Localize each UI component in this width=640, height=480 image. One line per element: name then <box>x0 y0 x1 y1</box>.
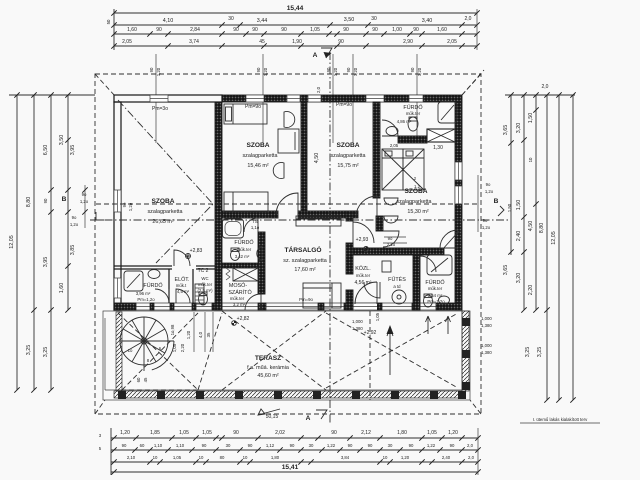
svg-text:90: 90 <box>252 27 258 33</box>
svg-text:90: 90 <box>343 27 349 33</box>
svg-text:2,05: 2,05 <box>122 39 132 45</box>
svg-text:Pm=3o: Pm=3o <box>152 106 168 112</box>
svg-text:45: 45 <box>143 377 148 382</box>
svg-text:3: 3 <box>99 433 102 438</box>
svg-text:15,46 m²: 15,46 m² <box>247 163 268 169</box>
svg-text:SZOBA: SZOBA <box>246 142 269 149</box>
svg-text:1,20: 1,20 <box>333 67 338 76</box>
svg-text:12,05: 12,05 <box>9 235 15 249</box>
svg-text:3,50: 3,50 <box>344 17 355 23</box>
svg-text:9o: 9o <box>483 218 488 223</box>
svg-text:1,50: 1,50 <box>528 113 534 124</box>
svg-text:3,25: 3,25 <box>43 347 49 358</box>
svg-text:FÜRDŐ: FÜRDŐ <box>234 239 253 246</box>
svg-text:90: 90 <box>368 443 373 448</box>
svg-text:+2,83: +2,83 <box>190 248 203 254</box>
svg-text:80: 80 <box>220 455 225 460</box>
svg-text:TERASZ: TERASZ <box>255 355 281 362</box>
svg-text:3,25: 3,25 <box>26 345 32 356</box>
svg-text:1,60: 1,60 <box>437 27 447 33</box>
svg-text:2,02: 2,02 <box>275 430 285 436</box>
svg-text:90: 90 <box>149 67 154 72</box>
svg-text:+2,93: +2,93 <box>356 237 369 243</box>
svg-text:1,50: 1,50 <box>507 203 512 212</box>
svg-text:3,42 m²: 3,42 m² <box>235 254 250 259</box>
svg-text:2,40: 2,40 <box>516 231 522 242</box>
svg-text:35: 35 <box>206 332 211 337</box>
svg-text:1,00: 1,00 <box>392 27 402 33</box>
svg-text:1,20: 1,20 <box>120 430 130 436</box>
svg-text:A: A <box>306 415 311 422</box>
svg-text:90: 90 <box>233 27 239 33</box>
svg-text:10: 10 <box>199 455 204 460</box>
svg-text:4,10: 4,10 <box>163 18 174 24</box>
svg-text:f.a. műá. kerámia: f.a. műá. kerámia <box>247 365 289 371</box>
svg-text:ELŐT.: ELŐT. <box>175 276 190 283</box>
svg-text:3,50: 3,50 <box>59 135 65 146</box>
svg-text:1,90: 1,90 <box>292 39 302 45</box>
svg-text:3,74: 3,74 <box>189 39 199 45</box>
svg-text:90: 90 <box>290 443 295 448</box>
svg-text:90: 90 <box>413 27 419 33</box>
svg-text:1,85: 1,85 <box>150 430 160 436</box>
svg-text:3,95: 3,95 <box>70 145 76 156</box>
svg-text:szalagparketta: szalagparketta <box>242 153 277 159</box>
svg-text:90: 90 <box>233 430 239 436</box>
svg-text:1,000: 1,000 <box>481 316 492 321</box>
svg-text:9o: 9o <box>72 215 77 220</box>
svg-text:30: 30 <box>371 16 377 22</box>
svg-text:50,15: 50,15 <box>266 414 279 420</box>
svg-text:Pm=9o: Pm=9o <box>299 297 313 302</box>
svg-text:KÖZL.: KÖZL. <box>355 265 371 272</box>
svg-text:FÜRDŐ: FÜRDŐ <box>425 279 444 286</box>
svg-text:2,12: 2,12 <box>361 430 371 436</box>
svg-text:90: 90 <box>372 27 378 33</box>
svg-text:1,05: 1,05 <box>179 430 189 436</box>
svg-text:1,05: 1,05 <box>202 430 212 436</box>
svg-text:2,0: 2,0 <box>542 84 549 90</box>
svg-text:2,0: 2,0 <box>316 86 321 93</box>
svg-text:2,0: 2,0 <box>468 455 475 460</box>
svg-text:2,84: 2,84 <box>190 27 200 33</box>
svg-text:1,2o: 1,2o <box>80 199 89 204</box>
svg-text:1,20: 1,20 <box>186 330 191 339</box>
svg-text:17,60 m²: 17,60 m² <box>294 267 315 273</box>
svg-text:4,50: 4,50 <box>528 221 534 232</box>
svg-text:1,80: 1,80 <box>271 455 280 460</box>
svg-text:Pm=1,2o: Pm=1,2o <box>137 297 155 302</box>
svg-text:4,50: 4,50 <box>314 153 320 164</box>
svg-text:1,50: 1,50 <box>516 200 522 211</box>
svg-text:12,05: 12,05 <box>551 231 557 245</box>
svg-text:műk.ter: műk.ter <box>356 273 371 278</box>
svg-text:3,96 m²: 3,96 m² <box>136 291 151 296</box>
svg-text:15,30 m²: 15,30 m² <box>407 209 428 215</box>
svg-text:2,0: 2,0 <box>465 16 472 22</box>
svg-text:1,05: 1,05 <box>172 343 177 352</box>
svg-text:2,20: 2,20 <box>180 343 185 352</box>
svg-text:1,20: 1,20 <box>263 67 268 76</box>
svg-text:90: 90 <box>122 443 127 448</box>
svg-text:30: 30 <box>309 443 314 448</box>
svg-text:1,22: 1,22 <box>427 443 436 448</box>
svg-text:sz. szalagparketta: sz. szalagparketta <box>283 258 326 264</box>
svg-text:3,84: 3,84 <box>341 455 350 460</box>
svg-text:50: 50 <box>106 19 111 24</box>
svg-text:TÁRSALGÓ: TÁRSALGÓ <box>285 245 322 254</box>
svg-text:1,20: 1,20 <box>353 67 358 76</box>
svg-text:15,75 m²: 15,75 m² <box>337 163 358 169</box>
svg-text:1,20: 1,20 <box>417 67 422 76</box>
svg-text:90: 90 <box>348 443 353 448</box>
svg-text:I. ütemű lakás kialakított ter: I. ütemű lakás kialakított terv <box>533 417 588 422</box>
svg-text:3,44: 3,44 <box>257 18 268 24</box>
svg-text:15,41: 15,41 <box>282 464 299 471</box>
svg-text:MOSÓ-: MOSÓ- <box>229 282 247 289</box>
svg-text:FÜRDŐ: FÜRDŐ <box>143 282 162 289</box>
svg-text:1,380: 1,380 <box>481 350 492 355</box>
svg-text:szalagparketta: szalagparketta <box>147 209 182 215</box>
svg-text:SZOBA: SZOBA <box>336 142 359 149</box>
svg-text:1,10: 1,10 <box>176 443 185 448</box>
svg-text:1,10: 1,10 <box>154 443 163 448</box>
svg-text:2,05: 2,05 <box>390 143 399 148</box>
svg-text:1,05: 1,05 <box>173 455 182 460</box>
svg-text:60: 60 <box>136 377 141 382</box>
svg-text:2,90: 2,90 <box>403 39 413 45</box>
svg-text:Pm=9o: Pm=9o <box>336 102 352 108</box>
svg-text:1,20: 1,20 <box>448 430 458 436</box>
svg-text:1,380: 1,380 <box>352 326 363 331</box>
svg-text:A: A <box>313 52 318 59</box>
svg-text:FŰTÉS: FŰTÉS <box>388 276 406 283</box>
svg-text:9o: 9o <box>82 192 87 197</box>
svg-text:1,1o: 1,1o <box>251 225 260 230</box>
svg-text:műk.ter: műk.ter <box>428 286 443 291</box>
svg-text:4,56 m²: 4,56 m² <box>355 280 372 286</box>
svg-text:5: 5 <box>99 446 102 451</box>
svg-text:1,000: 1,000 <box>481 343 492 348</box>
svg-text:szalagparketta: szalagparketta <box>330 153 365 159</box>
svg-text:3,85: 3,85 <box>70 245 76 256</box>
svg-text:a td: a td <box>393 284 401 289</box>
svg-text:WC: WC <box>201 276 208 281</box>
svg-text:90: 90 <box>256 67 261 72</box>
svg-text:4,0: 4,0 <box>198 331 203 338</box>
svg-text:1,05: 1,05 <box>375 312 380 321</box>
svg-text:6: 6 <box>159 346 162 351</box>
svg-text:3,95: 3,95 <box>43 257 49 268</box>
svg-text:1,2o: 1,2o <box>485 189 494 194</box>
svg-text:10: 10 <box>528 157 533 162</box>
svg-text:90: 90 <box>156 27 162 33</box>
svg-text:10: 10 <box>243 455 248 460</box>
svg-text:1,12: 1,12 <box>266 443 275 448</box>
svg-text:2,10: 2,10 <box>127 455 136 460</box>
svg-text:+2,82: +2,82 <box>237 316 250 322</box>
svg-text:90: 90 <box>202 443 207 448</box>
svg-text:3,2 m²: 3,2 m² <box>233 302 246 307</box>
svg-text:4,5 m²: 4,5 m² <box>177 289 190 294</box>
svg-text:30: 30 <box>226 443 231 448</box>
svg-text:60: 60 <box>140 443 145 448</box>
svg-text:1,2o: 1,2o <box>70 222 79 227</box>
svg-text:30: 30 <box>228 16 234 22</box>
svg-text:30: 30 <box>388 443 393 448</box>
svg-text:műk.ter: műk.ter <box>198 282 213 287</box>
svg-text:B: B <box>62 196 67 203</box>
svg-text:műk.ter: műk.ter <box>230 296 245 301</box>
svg-text:10: 10 <box>153 455 158 460</box>
svg-text:1,380: 1,380 <box>481 323 492 328</box>
svg-text:3,20: 3,20 <box>516 123 522 134</box>
svg-text:90: 90 <box>338 39 344 45</box>
svg-text:90: 90 <box>248 443 253 448</box>
svg-text:1o: 1o <box>128 348 133 353</box>
svg-text:2,40: 2,40 <box>442 455 451 460</box>
svg-text:9o: 9o <box>486 182 491 187</box>
svg-text:4,86 m²: 4,86 m² <box>397 119 412 124</box>
svg-text:műk.ter: műk.ter <box>406 111 421 116</box>
svg-text:15,44: 15,44 <box>287 5 304 12</box>
svg-text:3,65: 3,65 <box>503 265 509 276</box>
svg-text:90: 90 <box>409 443 414 448</box>
svg-text:8: 8 <box>147 358 150 363</box>
svg-text:Pm=9o: Pm=9o <box>245 104 261 110</box>
svg-text:1,80: 1,80 <box>397 430 407 436</box>
svg-text:3,20: 3,20 <box>516 273 522 284</box>
svg-text:3,25: 3,25 <box>537 347 543 358</box>
svg-text:90: 90 <box>331 430 337 436</box>
svg-text:SZÁRÍTÓ: SZÁRÍTÓ <box>228 289 251 296</box>
svg-text:8,80: 8,80 <box>26 197 32 208</box>
svg-text:9o: 9o <box>122 202 127 207</box>
svg-text:90: 90 <box>346 67 351 72</box>
svg-text:10: 10 <box>383 455 388 460</box>
svg-text:8,80: 8,80 <box>539 223 545 234</box>
svg-text:1,05: 1,05 <box>310 27 320 33</box>
svg-text:Pm=1,2o: Pm=1,2o <box>427 299 445 304</box>
svg-text:90: 90 <box>450 443 455 448</box>
svg-text:1,60: 1,60 <box>59 283 65 294</box>
svg-text:2,05: 2,05 <box>447 39 457 45</box>
svg-text:3,65: 3,65 <box>503 125 509 136</box>
svg-text:1o,98: 1o,98 <box>170 324 175 335</box>
svg-text:1,60: 1,60 <box>127 27 137 33</box>
svg-text:1,20: 1,20 <box>156 67 161 76</box>
svg-text:1,30: 1,30 <box>433 145 443 151</box>
svg-text:műk.t: műk.t <box>176 283 187 288</box>
svg-text:90: 90 <box>410 67 415 72</box>
svg-text:45,60 m²: 45,60 m² <box>257 373 278 379</box>
svg-text:1,20: 1,20 <box>401 455 410 460</box>
svg-text:6,50: 6,50 <box>43 145 49 156</box>
svg-text:1,05: 1,05 <box>427 430 437 436</box>
svg-text:2,20: 2,20 <box>528 285 534 296</box>
svg-text:90: 90 <box>43 198 48 203</box>
svg-text:B: B <box>494 198 499 205</box>
svg-text:90: 90 <box>281 27 287 33</box>
svg-text:3,25: 3,25 <box>525 347 531 358</box>
svg-text:1,2o: 1,2o <box>482 225 491 230</box>
svg-text:TC 2: TC 2 <box>198 268 209 274</box>
svg-text:FÜRDŐ: FÜRDŐ <box>403 104 422 111</box>
svg-text:1,000: 1,000 <box>352 319 363 324</box>
svg-text:2,0: 2,0 <box>467 443 474 448</box>
svg-text:1,22: 1,22 <box>327 443 336 448</box>
svg-text:3,40: 3,40 <box>422 18 433 24</box>
svg-text:45: 45 <box>259 39 265 45</box>
